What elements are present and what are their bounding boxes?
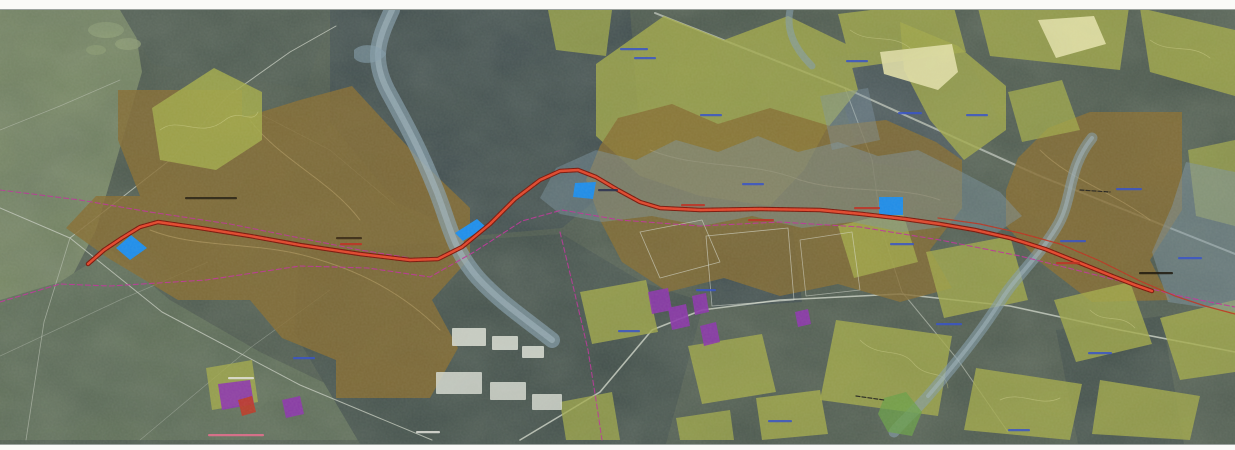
label-mark: [846, 60, 868, 62]
label-mark: [696, 289, 716, 291]
label-mark: [340, 243, 362, 245]
label-mark: [768, 420, 792, 422]
label-mark: [1088, 352, 1112, 354]
label-mark: [598, 189, 618, 191]
label-mark: [854, 207, 880, 209]
label-mark: [1139, 272, 1173, 274]
label-mark: [620, 48, 648, 50]
map-canvas: [0, 10, 1235, 444]
layer-image-grain: [0, 10, 1235, 444]
label-mark: [1060, 240, 1086, 242]
label-mark: [228, 377, 254, 379]
label-mark: [416, 431, 440, 433]
label-mark: [898, 112, 922, 114]
label-mark: [700, 114, 722, 116]
label-mark: [966, 114, 988, 116]
label-mark: [748, 219, 774, 221]
label-mark: [936, 323, 962, 325]
label-mark: [1008, 429, 1030, 431]
label-mark: [890, 243, 914, 245]
label-mark: [1116, 188, 1142, 190]
corridor-aerial-map: [0, 9, 1235, 445]
label-mark: [336, 237, 362, 239]
label-mark: [293, 357, 315, 359]
label-mark: [208, 434, 264, 436]
map-layers: [0, 10, 1235, 444]
label-mark: [185, 197, 237, 199]
label-mark: [618, 330, 640, 332]
map-sheet-page: [0, 0, 1235, 450]
page-margin-bottom: [0, 445, 1235, 450]
label-mark: [742, 183, 764, 185]
page-margin-top: [0, 0, 1235, 9]
label-mark: [681, 204, 705, 206]
mottle-final: [0, 10, 1235, 444]
label-mark: [634, 57, 656, 59]
label-mark: [1056, 262, 1080, 264]
label-mark: [1178, 257, 1202, 259]
